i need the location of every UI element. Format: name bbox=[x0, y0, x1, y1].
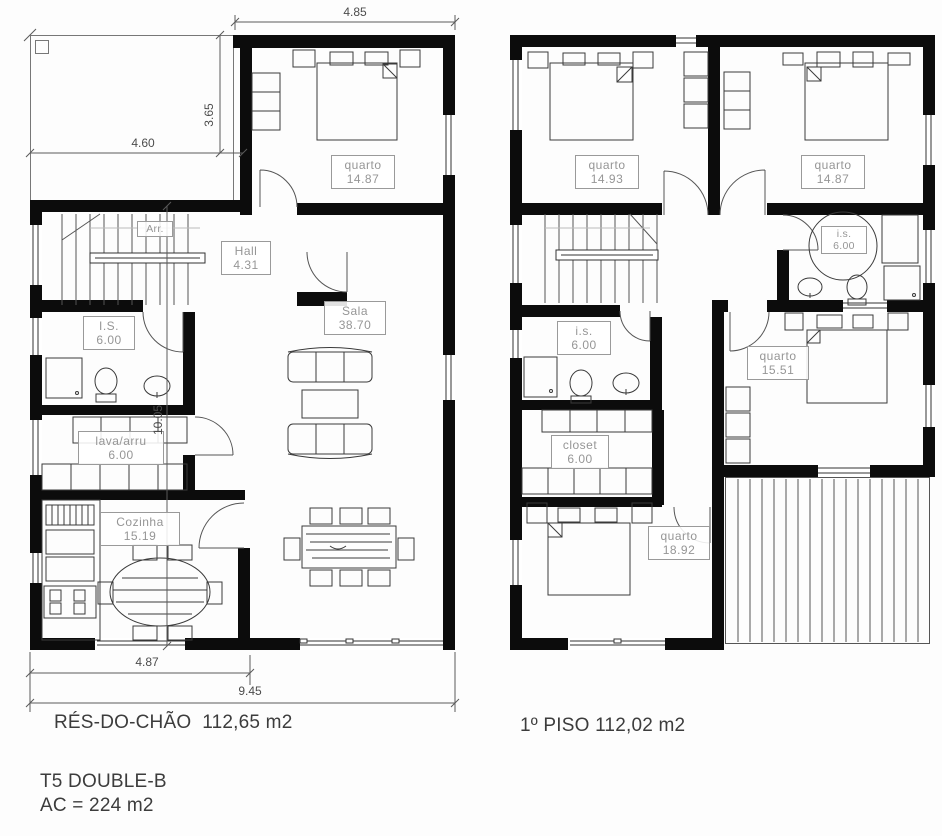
first-floor-stairs bbox=[545, 214, 658, 303]
room-label-is-ground: I.S. 6.00 bbox=[83, 316, 135, 350]
room-name: Sala bbox=[328, 304, 382, 318]
room-label-arrumos: Arr. bbox=[137, 221, 173, 237]
room-label-closet: closet 6.00 bbox=[551, 435, 609, 469]
room-name: quarto bbox=[335, 158, 391, 172]
room-label-quarto-ground: quarto 14.87 bbox=[331, 155, 395, 189]
room-label-is2: i.s. 6.00 bbox=[557, 321, 611, 355]
floor-plan-drawing bbox=[0, 0, 942, 836]
room-label-is1: i.s. 6.00 bbox=[821, 226, 867, 254]
floor-plan-sheet: quarto 14.87 Arr. Hall 4.31 I.S. 6.00 la… bbox=[0, 0, 942, 836]
dim-carport-width: 4.60 bbox=[118, 136, 168, 150]
room-label-cozinha: Cozinha 15.19 bbox=[100, 512, 180, 546]
room-area: 6.00 bbox=[555, 452, 605, 466]
room-area: 14.87 bbox=[335, 172, 391, 186]
room-area: 6.00 bbox=[87, 333, 131, 347]
room-label-quarto1: quarto 14.93 bbox=[575, 155, 639, 189]
room-area: 4.31 bbox=[225, 258, 267, 272]
room-area: 6.00 bbox=[561, 338, 607, 352]
room-area: 15.19 bbox=[104, 529, 176, 543]
room-area: 6.00 bbox=[82, 448, 160, 462]
dim-interior-height: 10.05 bbox=[151, 398, 165, 442]
room-name: lava/arru bbox=[82, 434, 160, 448]
ground-floor-name: RÉS-DO-CHÃO bbox=[54, 712, 191, 733]
room-name: Hall bbox=[225, 244, 267, 258]
room-label-hall: Hall 4.31 bbox=[221, 241, 271, 275]
room-name: i.s. bbox=[824, 228, 864, 240]
room-area: 14.93 bbox=[579, 172, 635, 186]
ground-floor-stairs bbox=[62, 214, 205, 305]
terrace bbox=[726, 478, 930, 644]
room-name: quarto bbox=[579, 158, 635, 172]
dim-top-width: 4.85 bbox=[330, 5, 380, 19]
dim-carport-height: 3.65 bbox=[202, 95, 216, 135]
room-name: quarto bbox=[751, 349, 805, 363]
room-label-sala: Sala 38.70 bbox=[324, 301, 386, 335]
room-area: 18.92 bbox=[652, 543, 706, 557]
room-name: i.s. bbox=[561, 324, 607, 338]
room-area: 38.70 bbox=[328, 318, 382, 332]
room-label-quarto4: quarto 18.92 bbox=[648, 526, 710, 560]
dim-bottom-total: 9.45 bbox=[225, 684, 275, 698]
room-area: 15.51 bbox=[751, 363, 805, 377]
dim-bottom-inner: 4.87 bbox=[122, 655, 172, 669]
room-name: Cozinha bbox=[104, 515, 176, 529]
room-label-quarto3: quarto 15.51 bbox=[747, 346, 809, 380]
first-floor-name: 1º PISO bbox=[520, 715, 590, 736]
room-name: quarto bbox=[652, 529, 706, 543]
ground-floor-area: 112,65 m2 bbox=[202, 712, 292, 733]
room-name: Arr. bbox=[140, 223, 170, 235]
model-title: T5 DOUBLE-B bbox=[40, 771, 167, 793]
room-area: 14.87 bbox=[805, 172, 861, 186]
room-label-quarto2: quarto 14.87 bbox=[801, 155, 865, 189]
first-floor-area: 112,02 m2 bbox=[595, 715, 685, 736]
room-area: 6.00 bbox=[824, 240, 864, 252]
first-floor-title: 1º PISO 112,02 m2 bbox=[520, 715, 685, 737]
room-name: closet bbox=[555, 438, 605, 452]
construction-area: AC = 224 m2 bbox=[40, 795, 154, 817]
room-name: quarto bbox=[805, 158, 861, 172]
ground-floor-title: RÉS-DO-CHÃO 112,65 m2 bbox=[54, 712, 292, 734]
room-name: I.S. bbox=[87, 319, 131, 333]
